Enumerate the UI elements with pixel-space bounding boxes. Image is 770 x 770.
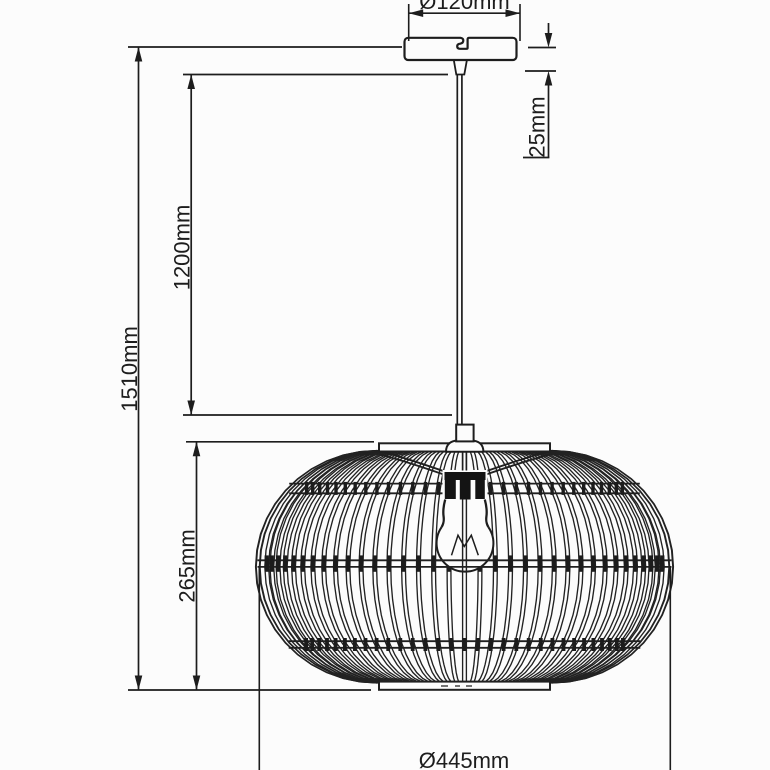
svg-text:Ø445mm: Ø445mm <box>419 748 509 770</box>
svg-text:Ø120mm: Ø120mm <box>419 0 509 14</box>
svg-text:1510mm: 1510mm <box>117 326 142 412</box>
svg-text:25mm: 25mm <box>525 96 550 157</box>
svg-text:265mm: 265mm <box>174 529 199 602</box>
svg-text:1200mm: 1200mm <box>169 205 194 291</box>
